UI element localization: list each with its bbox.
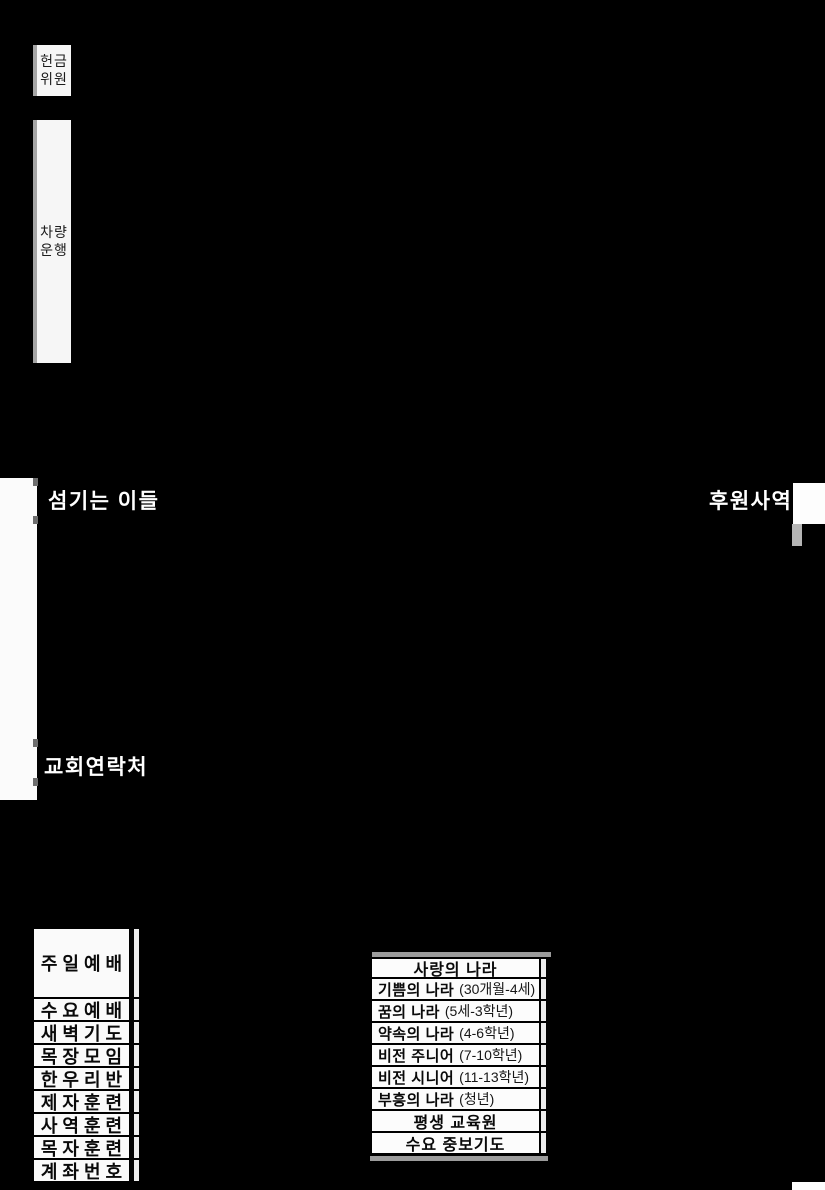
section-title-serving: 섬기는 이들 (48, 485, 159, 515)
ministries-footer: 평생 교육원 (370, 1111, 541, 1133)
ministry-name: 비전 주니어 (378, 1045, 454, 1066)
ministries-header: 사랑의 나라 (370, 957, 541, 979)
section-title-contact: 교회연락처 (44, 751, 148, 781)
table-edge-sliver (541, 1045, 548, 1067)
table-edge-sliver (541, 1089, 548, 1111)
ministry-row: 비전 주니어 (7-10학년) (370, 1045, 541, 1067)
ministry-detail: (청년) (459, 1089, 494, 1109)
table-row: 약속의 나라 (4-6학년) (370, 1023, 548, 1045)
ministry-name: 기쁨의 나라 (378, 979, 454, 1000)
offering-label-line2: 위원 (40, 71, 68, 89)
ministry-detail: (7-10학년) (459, 1045, 522, 1065)
scan-notch (33, 516, 38, 524)
table-edge-sliver (134, 1137, 139, 1160)
table-row: 사랑의 나라 (370, 957, 548, 979)
ministries-footer: 수요 중보기도 (370, 1133, 541, 1155)
table-edge-sliver (134, 1114, 139, 1137)
scan-notch (33, 778, 38, 786)
schedule-table: 주일예배 수요예배 새벽기도 목장모임 한우리반 제자훈련 (32, 927, 139, 1183)
table-edge-sliver (541, 1023, 548, 1045)
vehicle-label-line2: 운행 (40, 242, 68, 260)
table-row: 평생 교육원 (370, 1111, 548, 1133)
vehicle-operation-box: 차량 운행 (37, 120, 71, 363)
table-row: 비전 시니어 (11-13학년) (370, 1067, 548, 1089)
ministry-name: 부흥의 나라 (378, 1089, 454, 1110)
ministry-detail: (11-13학년) (459, 1067, 529, 1087)
table-edge-sliver (541, 1001, 548, 1023)
table-edge-sliver (541, 979, 548, 1001)
table-edge-sliver (541, 1133, 548, 1155)
ministries-table: 사랑의 나라 기쁨의 나라 (30개월-4세) 꿈의 나라 (5세-3학년) 약… (370, 957, 548, 1155)
table-row: 수요 중보기도 (370, 1133, 548, 1155)
table-row: 기쁨의 나라 (30개월-4세) (370, 979, 548, 1001)
table-edge-sliver (134, 999, 139, 1022)
ministry-row: 약속의 나라 (4-6학년) (370, 1023, 541, 1045)
schedule-row-label: 주일예배 (32, 927, 131, 999)
ministry-name: 약속의 나라 (378, 1023, 454, 1044)
schedule-row-label: 계좌번호 (32, 1160, 131, 1183)
ministry-row: 비전 시니어 (11-13학년) (370, 1067, 541, 1089)
table-edge-sliver (134, 1068, 139, 1091)
table-edge-sliver (134, 927, 139, 999)
offering-label-line1: 헌금 (40, 53, 68, 71)
bottom-right-fragment (792, 1182, 825, 1190)
offering-committee-box: 헌금 위원 (37, 45, 71, 96)
left-margin-band (0, 478, 37, 800)
section-title-support: 후원사역 (709, 485, 792, 515)
ministry-name: 비전 시니어 (378, 1067, 454, 1088)
table-row: 부흥의 나라 (청년) (370, 1089, 548, 1111)
table-row: 비전 주니어 (7-10학년) (370, 1045, 548, 1067)
ministries-bottom-strip (370, 1156, 548, 1161)
ministry-row: 꿈의 나라 (5세-3학년) (370, 1001, 541, 1023)
table-row: 계좌번호 (32, 1160, 139, 1183)
table-edge-sliver (541, 957, 548, 979)
scan-notch (33, 739, 38, 747)
table-edge-sliver (134, 1091, 139, 1114)
table-edge-sliver (541, 1067, 548, 1089)
right-edge-gray-fragment (792, 524, 802, 546)
ministry-name: 꿈의 나라 (378, 1001, 440, 1022)
scan-notch (33, 478, 38, 486)
ministry-detail: (4-6학년) (459, 1023, 514, 1043)
table-edge-sliver (541, 1111, 548, 1133)
ministry-row: 부흥의 나라 (청년) (370, 1089, 541, 1111)
bulletin-page: 헌금 위원 차량 운행 섬기는 이들 후원사역 교회연락처 주일예배 수요예배 … (0, 0, 825, 1190)
ministry-detail: (30개월-4세) (459, 979, 535, 999)
right-edge-fragment (793, 483, 825, 524)
table-edge-sliver (134, 1160, 139, 1183)
table-row: 꿈의 나라 (5세-3학년) (370, 1001, 548, 1023)
vehicle-label-line1: 차량 (40, 224, 68, 242)
table-row: 주일예배 (32, 927, 139, 999)
ministry-detail: (5세-3학년) (445, 1001, 513, 1021)
ministry-row: 기쁨의 나라 (30개월-4세) (370, 979, 541, 1001)
table-edge-sliver (134, 1045, 139, 1068)
table-edge-sliver (134, 1022, 139, 1045)
